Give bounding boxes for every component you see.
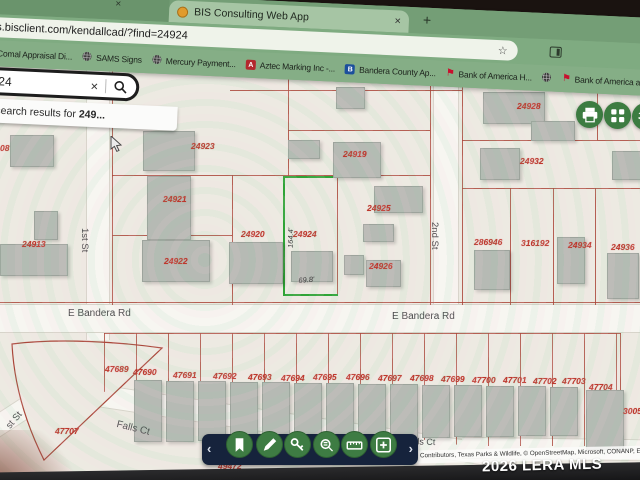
print-button[interactable] bbox=[576, 101, 603, 128]
building-footprint bbox=[34, 211, 58, 240]
mls-watermark: 2026 LERA MLS bbox=[482, 456, 603, 476]
parcel-line bbox=[0, 302, 640, 303]
layers-icon bbox=[632, 103, 640, 130]
building-footprint bbox=[143, 131, 195, 171]
building-footprint bbox=[363, 224, 394, 242]
bookmark-label: SAMS Signs bbox=[96, 53, 142, 65]
parcel-label-47704: 47704 bbox=[589, 382, 613, 392]
parcel-line bbox=[430, 60, 431, 305]
search-document-button[interactable] bbox=[313, 431, 340, 458]
new-tab-button[interactable]: + bbox=[423, 12, 432, 28]
bookmark-label: Bandera County Ap... bbox=[359, 65, 436, 78]
flag-icon: ⚑ bbox=[562, 74, 571, 84]
apps-grid-icon bbox=[604, 102, 631, 129]
search-input-value[interactable]: 24924 bbox=[0, 73, 91, 92]
street-label: E Bandera Rd bbox=[392, 311, 455, 322]
measure-icon bbox=[342, 432, 367, 458]
building-footprint bbox=[518, 386, 546, 436]
building-footprint bbox=[336, 87, 365, 109]
parcel-label-47699: 47699 bbox=[441, 374, 465, 384]
parcel-label-47693: 47693 bbox=[248, 372, 272, 382]
parcel-label-47696: 47696 bbox=[346, 372, 370, 382]
search-results-query: 249... bbox=[79, 108, 106, 121]
mouse-cursor bbox=[110, 136, 126, 153]
parcel-label-24926: 24926 bbox=[369, 261, 393, 271]
building-footprint bbox=[288, 140, 320, 159]
building-footprint bbox=[390, 384, 418, 438]
building-footprint bbox=[612, 151, 640, 180]
measure-button[interactable] bbox=[341, 431, 368, 458]
building-footprint bbox=[344, 255, 364, 275]
bookmark-label: Bank of America H... bbox=[458, 69, 532, 82]
bookmark-item[interactable]: Mercury Payment... bbox=[152, 54, 237, 70]
selected-parcel-boundary bbox=[283, 294, 338, 296]
parcel-label-47689: 47689 bbox=[105, 364, 129, 374]
parcel-line bbox=[462, 60, 463, 305]
parcel-label-47703: 47703 bbox=[562, 376, 586, 386]
street-label: E Bandera Rd bbox=[68, 308, 131, 319]
toolbar-next-button[interactable]: › bbox=[409, 441, 413, 456]
parcel-label-286946: 286946 bbox=[474, 237, 502, 247]
building-footprint bbox=[422, 385, 450, 438]
parcel-label-24921: 24921 bbox=[163, 194, 187, 204]
bookmark-label: Aztec Marking Inc -... bbox=[260, 60, 336, 73]
parcel-label-24936: 24936 bbox=[611, 242, 635, 252]
flag-icon: ⚑ bbox=[446, 69, 455, 79]
parcel-label-24923: 24923 bbox=[191, 141, 215, 151]
building-footprint bbox=[166, 381, 194, 442]
parcel-label-47698: 47698 bbox=[410, 373, 434, 383]
parcel-line bbox=[510, 188, 511, 305]
selected-parcel-boundary bbox=[283, 176, 285, 296]
building-footprint bbox=[229, 242, 283, 284]
parcel-label-24928: 24928 bbox=[517, 101, 541, 111]
parcel-label-47691: 47691 bbox=[173, 370, 197, 380]
parcel-label-24919: 24919 bbox=[343, 149, 367, 159]
parcel-label-24920: 24920 bbox=[241, 229, 265, 239]
building-footprint bbox=[607, 253, 639, 299]
background-tab-close-icon[interactable]: × bbox=[115, 0, 121, 10]
search-document-icon bbox=[314, 432, 339, 458]
parcel-label-24913: 24913 bbox=[22, 239, 46, 249]
parcel-label-24922: 24922 bbox=[164, 256, 188, 266]
parcel-label-316192: 316192 bbox=[521, 238, 549, 248]
street-label: 2nd St bbox=[429, 222, 440, 249]
parcel-label-47694: 47694 bbox=[281, 373, 305, 383]
toolbar-prev-button[interactable]: ‹ bbox=[207, 441, 211, 456]
building-footprint bbox=[333, 142, 381, 178]
parcel-label-3005: 3005 bbox=[623, 406, 640, 416]
building-footprint bbox=[198, 381, 226, 441]
parcel-label-47700: 47700 bbox=[472, 375, 496, 385]
pencil-icon bbox=[257, 432, 282, 458]
search-results-text: search results for bbox=[0, 105, 76, 121]
screen-photo: 0824923249192492824928249212492524932249… bbox=[0, 0, 640, 480]
parcel-label-47702: 47702 bbox=[533, 376, 557, 386]
print-icon bbox=[576, 101, 603, 128]
building-footprint bbox=[486, 386, 514, 437]
parcel-label-24925: 24925 bbox=[367, 203, 391, 213]
favicon-letter-icon: B bbox=[345, 64, 355, 74]
search-divider bbox=[105, 79, 107, 93]
parcel-label-47695: 47695 bbox=[313, 372, 337, 382]
bookmark-item[interactable]: ⚑Bank of America H... bbox=[446, 69, 533, 83]
building-footprint bbox=[10, 135, 54, 167]
favicon-letter-icon: A bbox=[246, 60, 256, 70]
dimension-label: 69.8' bbox=[298, 275, 315, 285]
clear-search-button[interactable]: × bbox=[90, 78, 98, 93]
bookmark-item[interactable]: ⚑Bank of America an... bbox=[562, 74, 640, 88]
parcel-line bbox=[553, 188, 554, 305]
parcel-label-08: 08 bbox=[0, 143, 9, 153]
map-toolbar: ‹ › bbox=[202, 434, 418, 465]
building-footprint bbox=[474, 250, 510, 290]
building-footprint bbox=[586, 390, 624, 450]
selected-parcel-boundary bbox=[283, 176, 338, 178]
add-button[interactable] bbox=[370, 431, 397, 458]
bookmark-item[interactable]: Comal Appraisal Di... bbox=[0, 48, 72, 61]
parcel-label-47701: 47701 bbox=[503, 375, 527, 385]
bookmark-label: Bank of America an... bbox=[574, 75, 640, 88]
dimension-label: 164.4' bbox=[286, 228, 295, 248]
parcel-label-24924: 24924 bbox=[293, 229, 317, 239]
parcel-label-47690: 47690 bbox=[133, 367, 157, 377]
apps-grid-button[interactable] bbox=[604, 102, 631, 129]
parcel-line bbox=[337, 176, 338, 296]
search-icon[interactable] bbox=[113, 80, 128, 95]
bookmark-item[interactable]: BBandera County Ap... bbox=[345, 64, 436, 78]
parcel-label-47697: 47697 bbox=[378, 373, 402, 383]
building-footprint bbox=[531, 121, 575, 141]
bookmark-button[interactable] bbox=[226, 431, 253, 458]
building-footprint bbox=[454, 385, 482, 437]
parcel-line bbox=[462, 188, 640, 189]
globe-icon bbox=[542, 72, 553, 84]
bookmark-item[interactable] bbox=[542, 72, 553, 84]
side-panel-icon[interactable] bbox=[549, 46, 561, 58]
parcel-label-24932: 24932 bbox=[520, 156, 544, 166]
parcel-line bbox=[232, 175, 233, 305]
bis-favicon-icon bbox=[177, 6, 188, 17]
bookmark-star-icon[interactable]: ☆ bbox=[498, 44, 508, 57]
add-icon bbox=[371, 432, 396, 458]
bookmark-label: Mercury Payment... bbox=[166, 56, 236, 69]
building-footprint bbox=[147, 176, 191, 240]
building-footprint bbox=[550, 387, 578, 436]
building-footprint bbox=[480, 148, 520, 180]
tab-close-button[interactable]: × bbox=[394, 15, 401, 27]
bookmark-item[interactable]: AAztec Marking Inc -... bbox=[246, 60, 336, 74]
globe-icon bbox=[82, 51, 93, 63]
bookmark-label: Comal Appraisal Di... bbox=[0, 48, 72, 61]
bookmark-item[interactable]: SAMS Signs bbox=[82, 51, 142, 66]
pencil-button[interactable] bbox=[256, 431, 283, 458]
parcel-label-24934: 24934 bbox=[568, 240, 592, 250]
parcel-label-47692: 47692 bbox=[213, 371, 237, 381]
key-button[interactable] bbox=[284, 431, 311, 458]
parcel-line bbox=[288, 130, 430, 131]
street-label: 1st St bbox=[79, 228, 90, 252]
bookmark-icon bbox=[227, 432, 252, 458]
globe-icon bbox=[152, 54, 163, 66]
key-icon bbox=[285, 432, 310, 458]
layers-button[interactable] bbox=[632, 103, 640, 130]
parcel-line bbox=[595, 188, 596, 305]
